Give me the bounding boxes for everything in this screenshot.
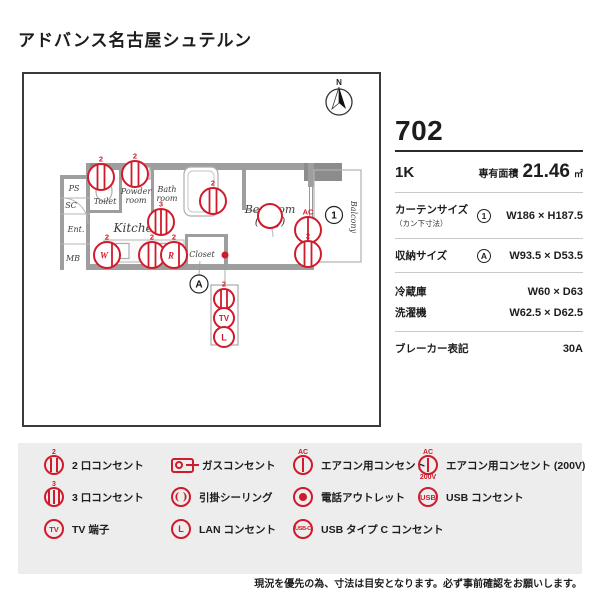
lan-outlet-symbol: L (214, 327, 234, 347)
legend-item-ac: AC エアコン用コンセント (293, 455, 418, 475)
usb-c-outlet-icon: USB-C (293, 519, 313, 539)
usb-outlet-icon: USB (418, 487, 438, 507)
svg-text:AC: AC (303, 208, 314, 217)
legend-item-gas: ガスコンセント (171, 458, 293, 473)
svg-text:2: 2 (99, 155, 103, 164)
room-label-closet: Closet (189, 250, 215, 259)
room-label-ent: Ent. (67, 225, 85, 234)
legend-item-usbc: USB-C USB タイプ C コンセント (293, 519, 418, 539)
info-row-fridge: 冷蔵庫 W60 × D63 (395, 281, 583, 302)
svg-text:3: 3 (159, 200, 163, 209)
svg-text:R: R (167, 251, 174, 261)
legend-panel: 2 2 口コンセント ガスコンセント AC エアコン用コンセント AC 200V… (18, 443, 582, 574)
area-value: 21.46 (522, 161, 570, 183)
svg-text:A: A (195, 280, 202, 291)
tv-terminal-icon: TV (44, 519, 64, 539)
storage-marker-badge: A (477, 249, 491, 263)
room-label-toilet: Toilet (94, 197, 117, 206)
svg-text:2: 2 (105, 233, 109, 242)
floor-plan-drawing: N PS (24, 74, 379, 425)
area-label: 専有面積 (478, 165, 518, 180)
ceiling-light-symbol (258, 204, 282, 228)
svg-text:L: L (221, 333, 227, 343)
phone-outlet-icon (293, 487, 313, 507)
svg-text:1: 1 (331, 211, 337, 222)
svg-text:W: W (100, 251, 109, 261)
info-row-storage: 収納サイズ A W93.5 × D53.5 (395, 239, 583, 272)
room-label-powder: Powder (120, 187, 153, 196)
legend-item-lan: L LAN コンセント (171, 519, 293, 539)
svg-text:2: 2 (211, 179, 215, 188)
svg-text:TV: TV (219, 314, 230, 323)
ac-200v-outlet-icon: AC 200V (418, 455, 438, 475)
layout-type: 1K (395, 164, 414, 181)
curtain-marker: 1 (326, 207, 343, 224)
svg-text:2: 2 (133, 152, 137, 161)
room-label-ps: PS (68, 184, 80, 193)
room-label-mb: MB (65, 254, 80, 263)
svg-text:room: room (125, 196, 146, 205)
svg-text:2: 2 (150, 233, 154, 242)
legend-item-usb: USB USB コンセント (418, 487, 585, 507)
ceiling-light-icon: ( ) (171, 487, 191, 507)
room-label-balcony: Balcony (349, 200, 358, 234)
outlet2-symbol-toilet: 2 (88, 155, 114, 191)
outlet2-symbol-callout: 2 (214, 280, 234, 310)
page-title: アドバンス名古屋シュテルン (18, 26, 252, 51)
unit-number: 702 (395, 117, 583, 145)
legend-item-ceiling: ( ) 引掛シーリング (171, 487, 293, 507)
legend-item-tv: TV TV 端子 (44, 519, 171, 539)
lan-outlet-icon: L (171, 519, 191, 539)
phone-outlet-symbol (222, 252, 229, 259)
info-row-breaker: ブレーカー表記 30A (395, 332, 583, 365)
outlet-2-icon: 2 (44, 455, 64, 475)
svg-text:2: 2 (172, 233, 176, 242)
outlet-3-icon: 3 (44, 487, 64, 507)
disclaimer-text: 現況を優先の為、寸法は目安となります。必ず事前確認をお願いします。 (254, 575, 582, 590)
floor-plan: N PS (22, 72, 381, 427)
info-row-curtain: カーテンサイズ （カン下寸法） 1 W186 × H187.5 (395, 193, 583, 238)
outlet-symbol-washer: W 2 (94, 233, 120, 269)
curtain-marker-badge: 1 (477, 209, 491, 223)
legend-item-phone: 電話アウトレット (293, 487, 418, 507)
legend-item-outlet2: 2 2 口コンセント (44, 455, 171, 475)
info-row-washer: 洗濯機 W62.5 × D62.5 (395, 302, 583, 323)
north-arrow-icon: N (326, 78, 352, 115)
storage-marker: A (190, 275, 208, 293)
room-label-bath: Bath (156, 185, 176, 194)
svg-text:2: 2 (306, 232, 310, 241)
area-unit: ㎡ (574, 167, 583, 180)
legend-item-outlet3: 3 3 口コンセント (44, 487, 171, 507)
legend-item-ac200v: AC 200V エアコン用コンセント (200V) (418, 455, 585, 475)
outlet2-symbol-powder: 2 (122, 152, 148, 188)
gas-outlet-icon (171, 458, 194, 473)
tv-outlet-symbol: TV (214, 308, 234, 328)
outlet-symbol-fridge: R 2 (161, 233, 187, 269)
unit-info-panel: 702 1K 専有面積 21.46 ㎡ カーテンサイズ （カン下寸法） 1 W1… (395, 117, 583, 365)
svg-text:2: 2 (222, 280, 226, 289)
ac-outlet-icon: AC (293, 455, 313, 475)
room-label-sc: SC (65, 201, 77, 210)
svg-text:N: N (336, 78, 342, 87)
